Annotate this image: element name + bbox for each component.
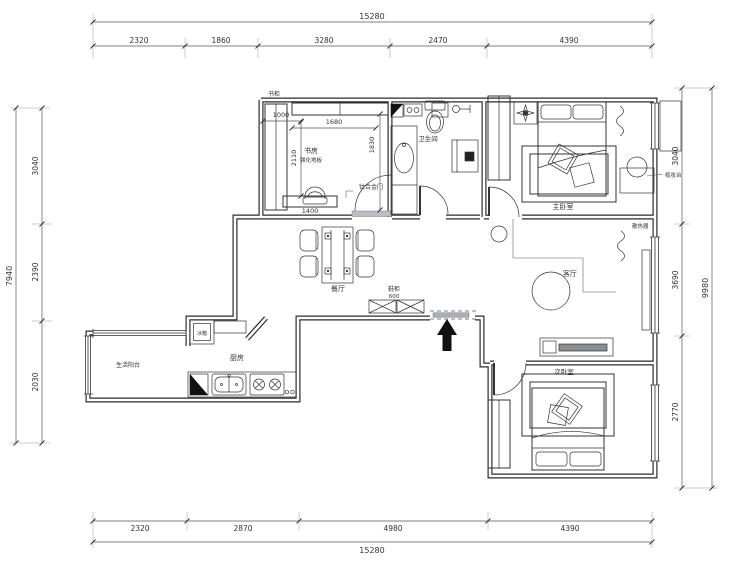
shoe-cabinet-label: 鞋柜 xyxy=(388,285,400,293)
study-label: 书房 xyxy=(304,146,318,155)
bed xyxy=(538,102,606,196)
dim-closet-width: 1680 xyxy=(326,118,343,126)
shoe-cabinet xyxy=(369,300,424,313)
balcony-window-top xyxy=(93,329,186,338)
dim-bookshelf-width: 1000 xyxy=(273,111,290,119)
dim-bottom: 2320 2870 4980 4390 15280 xyxy=(91,512,655,555)
dim-bottom-seg-3: 4980 xyxy=(383,524,402,533)
dim-top-seg-1: 2320 xyxy=(129,36,148,45)
ac-platform xyxy=(660,101,681,151)
corner-counter xyxy=(214,321,246,333)
stool-icon xyxy=(491,226,507,242)
study-door-leaf xyxy=(352,211,391,217)
second-bedroom: 次卧室 xyxy=(488,363,614,470)
balcony: 生活阳台 xyxy=(116,361,140,369)
living-room-window xyxy=(650,237,660,333)
floor-plan-canvas: 15280 2320 1860 3280 2470 4390 2320 2870… xyxy=(0,0,740,565)
dim-bottom-overall: 15280 xyxy=(359,546,384,555)
master-bedroom-window xyxy=(650,101,681,151)
dim-bottom-seg-2: 2870 xyxy=(233,524,252,533)
shoe-cabinet-size: 600 xyxy=(389,294,400,300)
second-bedroom-label: 次卧室 xyxy=(554,367,574,376)
study-floor-label: 强化地板 xyxy=(300,156,323,164)
dim-left-seg-3: 2030 xyxy=(31,372,40,391)
dim-bottom-seg-4: 4390 xyxy=(560,524,579,533)
dining-area: 餐厅 鞋柜 600 xyxy=(300,227,424,313)
floor-plan-drawing: 15280 2320 1860 3280 2470 4390 2320 2870… xyxy=(0,0,740,565)
entry xyxy=(430,311,477,351)
master-bedroom-label: 主卧室 xyxy=(553,202,574,211)
curtain-icon xyxy=(617,106,624,136)
tv-icon xyxy=(543,341,556,353)
dim-right-seg-1: 3040 xyxy=(671,146,680,165)
counter-corner-icon xyxy=(190,374,208,395)
column-icon xyxy=(391,104,403,117)
balcony-label: 生活阳台 xyxy=(116,361,140,369)
dim-top-seg-2: 1860 xyxy=(211,36,230,45)
entry-door-leaf xyxy=(433,313,469,318)
dim-top: 15280 2320 1860 3280 2470 4390 xyxy=(91,12,655,58)
vanity-top xyxy=(404,104,422,116)
cushions xyxy=(548,394,583,426)
dim-right-overall: 9980 xyxy=(701,278,710,298)
radiator-icon xyxy=(642,250,650,330)
dim-left-seg-1: 3040 xyxy=(31,156,40,175)
bathroom-label: 卫生间 xyxy=(418,134,438,143)
second-bedroom-window xyxy=(650,385,660,461)
bathroom: 卫生间 xyxy=(391,101,478,215)
dim-bottom-seg-1: 2320 xyxy=(130,524,149,533)
dining-label: 餐厅 xyxy=(331,284,345,293)
stove-icon xyxy=(250,374,284,395)
ceiling-lamp-icon xyxy=(514,102,537,124)
windows xyxy=(84,101,681,461)
dim-study-depth: 2110 xyxy=(290,150,298,167)
dim-closet-depth: 1830 xyxy=(368,137,376,154)
cushions xyxy=(548,144,594,187)
living-label: 客厅 xyxy=(563,269,577,278)
dim-top-seg-5: 4390 xyxy=(559,36,578,45)
washing-machine-icon xyxy=(452,140,478,172)
radiator-label: 散热器 xyxy=(632,222,649,230)
master-door xyxy=(489,187,519,217)
sink-counter xyxy=(391,126,417,214)
dim-right: 3040 3690 2770 9980 xyxy=(671,86,718,491)
dim-top-seg-4: 2470 xyxy=(428,36,447,45)
dim-left: 7940 3040 2390 2030 xyxy=(5,106,52,446)
dim-extension-lines xyxy=(674,88,718,488)
fridge-label: 冰箱 xyxy=(197,330,207,337)
living-room: 客厅 散热器 xyxy=(491,219,650,356)
dining-table xyxy=(322,227,353,283)
tv-cabinet xyxy=(540,338,613,356)
kitchen: 冰箱 厨房 xyxy=(188,320,296,397)
study-room: 1000 1680 2110 1830 1400 书柜 书房 强化地板 钛合金门 xyxy=(261,90,392,217)
shower-head-icon xyxy=(453,105,471,113)
dim-left-seg-2: 2390 xyxy=(31,262,40,281)
bookcase-label: 书柜 xyxy=(268,90,280,98)
dim-top-overall: 15280 xyxy=(359,12,384,21)
kitchen-label: 厨房 xyxy=(230,353,244,362)
rug xyxy=(522,374,614,436)
study-door xyxy=(352,175,391,217)
study-desk xyxy=(283,196,337,207)
bathroom-door xyxy=(420,186,448,215)
dim-desk-width: 1400 xyxy=(302,207,319,215)
second-bedroom-door xyxy=(494,363,526,395)
dresser-label: 梳妆台 xyxy=(665,171,682,179)
ceiling-step-line xyxy=(513,219,616,292)
balcony-window-left xyxy=(84,336,93,394)
dim-left-overall: 7940 xyxy=(5,266,14,286)
entry-arrow-icon xyxy=(437,319,457,351)
sink-icon xyxy=(212,374,246,395)
bathroom-door-label: 钛合金门 xyxy=(359,183,383,191)
kitchen-counter xyxy=(188,372,296,397)
dim-top-seg-3: 3280 xyxy=(314,36,333,45)
curtain-icon xyxy=(618,231,625,261)
dim-right-seg-3: 2770 xyxy=(671,402,680,421)
dim-right-seg-2: 3690 xyxy=(671,270,680,289)
